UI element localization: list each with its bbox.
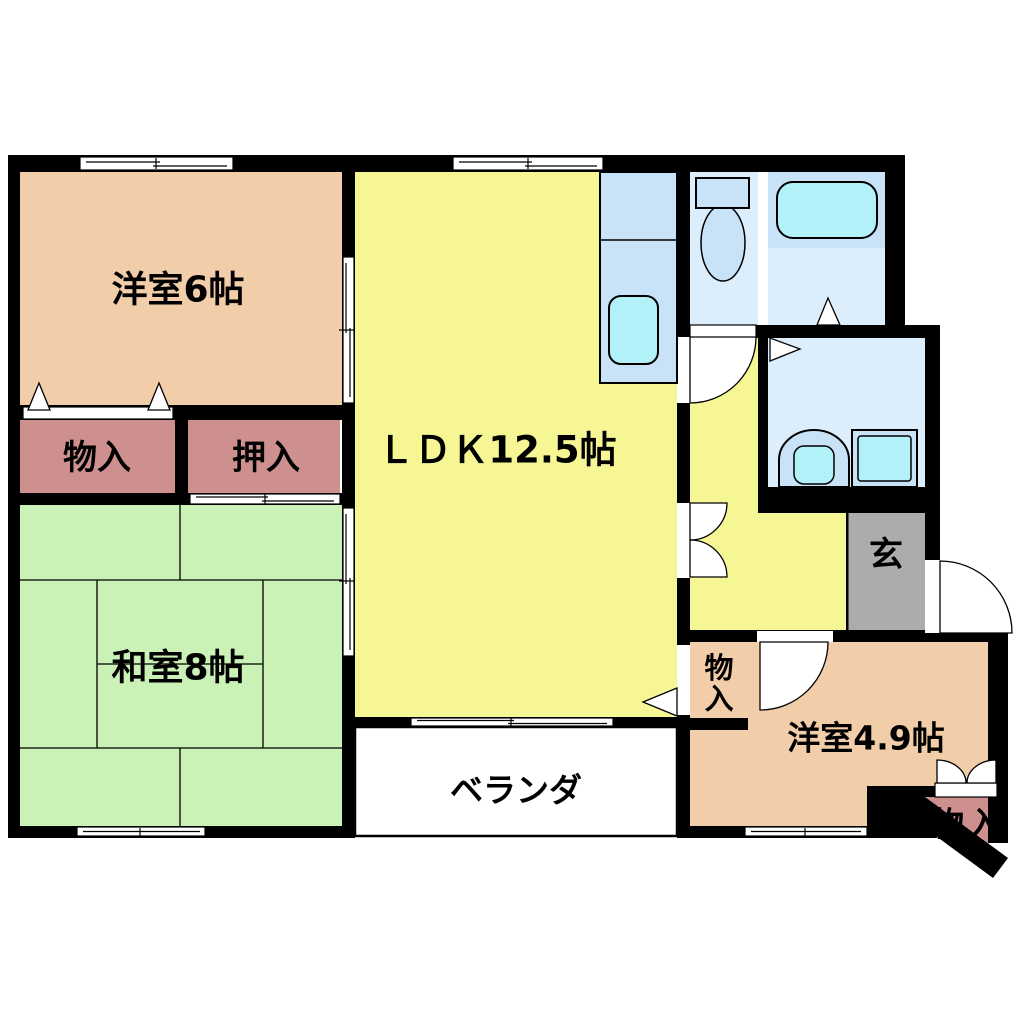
entrance-door: [940, 561, 1012, 633]
label-western49: 洋室4.9帖: [787, 719, 944, 758]
toilet-door-gap: [677, 337, 690, 403]
toilet-door-sill: [690, 325, 756, 338]
hall-double-door-gap: [677, 503, 690, 578]
floor-plan-page: 洋室6帖 ＬＤＫ12.5帖 和室8帖 物入 押入 玄 ベランダ 洋室4.9帖 物…: [0, 0, 1020, 1020]
toilet-bowl: [701, 205, 745, 281]
slider-ldk-veranda: [411, 718, 613, 726]
entrance-door-gap: [925, 560, 940, 633]
washing-machine: [852, 430, 917, 487]
corner-closet-sill: [935, 783, 997, 797]
label-storage-corner: 物入: [931, 805, 1005, 844]
slider-japanese8-door: [343, 508, 354, 656]
label-entrance: 玄: [869, 535, 903, 575]
label-western6: 洋室6帖: [111, 270, 244, 311]
western49-door-gap: [757, 631, 833, 642]
label-hall-storage-2: 入: [704, 682, 733, 716]
label-veranda: ベランダ: [450, 771, 582, 810]
washbasin: [779, 430, 849, 487]
label-japanese8: 和室8帖: [111, 648, 244, 689]
label-storage-north: 物入: [63, 438, 131, 478]
label-ldk: ＬＤＫ12.5帖: [377, 429, 616, 472]
kitchen: [600, 172, 677, 383]
label-oshiire: 押入: [232, 438, 300, 478]
bathtub: [777, 182, 877, 238]
label-hall-storage-1: 物: [704, 651, 733, 685]
kitchen-sink: [609, 296, 658, 364]
hall-storage-door-gap: [677, 645, 690, 715]
floor-plan: 洋室6帖 ＬＤＫ12.5帖 和室8帖 物入 押入 玄 ベランダ 洋室4.9帖 物…: [0, 0, 1020, 1020]
toilet-tank: [696, 178, 749, 208]
